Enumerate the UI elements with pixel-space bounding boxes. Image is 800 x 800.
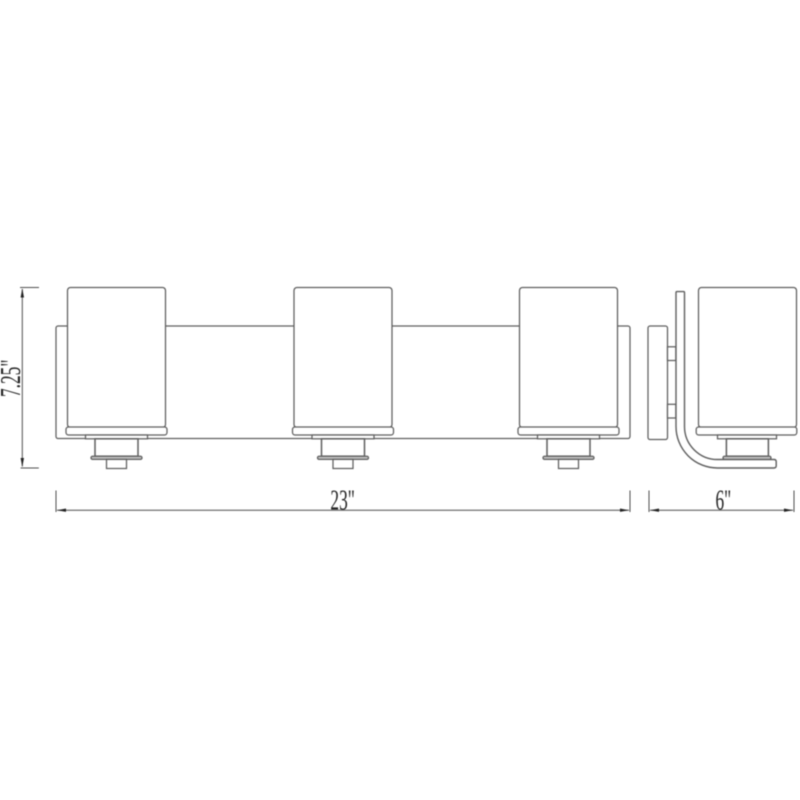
svg-text:7.25": 7.25" (0, 360, 27, 397)
svg-text:6": 6" (716, 485, 732, 516)
svg-text:23": 23" (330, 485, 354, 516)
